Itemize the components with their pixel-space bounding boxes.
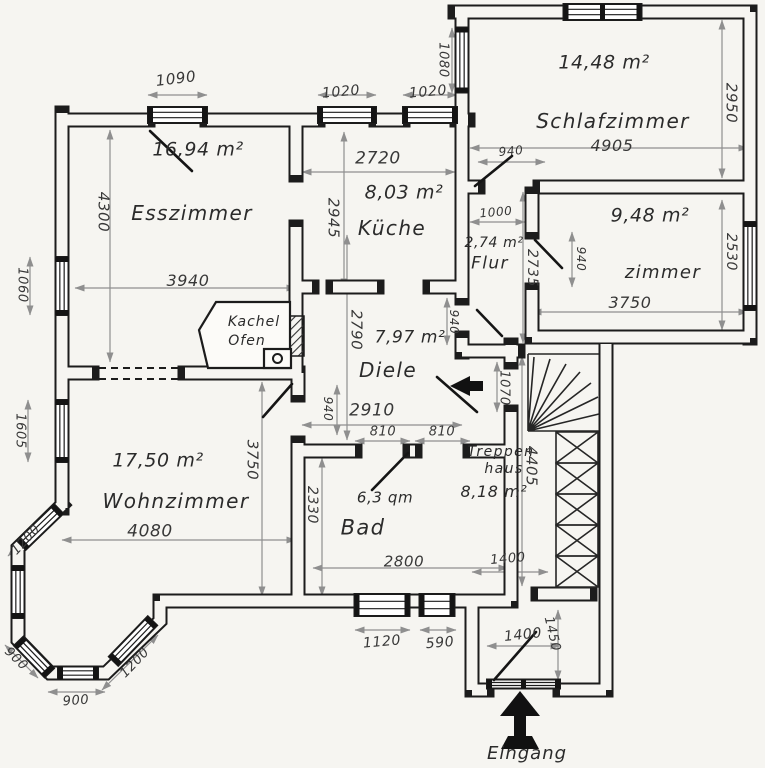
dim-label: 590 bbox=[425, 635, 455, 651]
room-name-label: Diele bbox=[359, 360, 417, 380]
dim-label: 940 bbox=[448, 310, 460, 335]
dim-label: 1080 bbox=[437, 42, 450, 77]
dim-label: 4080 bbox=[127, 524, 173, 541]
room-area-label: 2,74 m² bbox=[464, 236, 523, 250]
room-name-label: zimmer bbox=[625, 264, 701, 282]
room-name-label: Küche bbox=[358, 218, 426, 238]
dim-label: 2950 bbox=[724, 83, 739, 124]
dim-label: 2530 bbox=[724, 233, 738, 271]
dim-label: 810 bbox=[429, 426, 456, 439]
dim-label: 1000 bbox=[479, 205, 513, 220]
dim-label: 940 bbox=[322, 397, 334, 422]
floor-plan: 16,94 m²Esszimmer39404300109010201020108… bbox=[0, 0, 765, 768]
feature-label: Eingang bbox=[487, 745, 567, 763]
dim-label: 1060 bbox=[16, 267, 29, 302]
dim-label: 3750 bbox=[608, 295, 651, 311]
dim-label: 2945 bbox=[326, 198, 341, 239]
dim-label: 1020 bbox=[321, 83, 360, 100]
room-area-label: 6,3 qm bbox=[357, 491, 413, 506]
room-area-label: 9,48 m² bbox=[611, 207, 690, 226]
room-area-label: 8,03 m² bbox=[365, 184, 444, 203]
dim-label: 1070 bbox=[498, 370, 511, 405]
dim-label: 3940 bbox=[166, 273, 209, 289]
dim-label: 1200 bbox=[9, 523, 43, 558]
dim-label: 1400 bbox=[503, 626, 542, 644]
dim-label: 1120 bbox=[362, 633, 401, 650]
dim-label: 2800 bbox=[384, 555, 425, 570]
dim-label: 1020 bbox=[408, 83, 447, 100]
room-area-label: 17,50 m² bbox=[112, 452, 203, 471]
dim-label: 4300 bbox=[96, 192, 111, 233]
dim-label: 1090 bbox=[155, 69, 197, 89]
room-name-label: Flur bbox=[471, 256, 509, 273]
room-area-label: 16,94 m² bbox=[152, 141, 243, 160]
room-name-label: haus bbox=[484, 462, 523, 476]
room-name-label: Esszimmer bbox=[131, 203, 253, 223]
dim-label: 940 bbox=[575, 247, 587, 272]
dim-label: 3750 bbox=[245, 440, 260, 481]
dim-label: 2735 bbox=[525, 249, 539, 287]
room-area-label: 8,18 m² bbox=[461, 484, 528, 500]
dim-label: 4405 bbox=[524, 446, 539, 487]
room-area-label: 7,97 m² bbox=[375, 330, 446, 347]
feature-label: Ofen bbox=[228, 334, 265, 348]
room-area-label: 14,48 m² bbox=[558, 54, 649, 73]
room-name-label: Wohnzimmer bbox=[103, 491, 250, 511]
dim-label: 4905 bbox=[590, 138, 633, 154]
dim-label: 1450 bbox=[542, 615, 563, 652]
room-name-label: Bad bbox=[341, 518, 386, 539]
room-name-label: Schlafzimmer bbox=[536, 111, 690, 131]
dim-label: 2330 bbox=[305, 486, 319, 524]
dim-label: 1200 bbox=[118, 646, 152, 681]
dim-label: 2910 bbox=[349, 403, 395, 420]
dim-label: 1400 bbox=[490, 551, 526, 567]
feature-label: Kachel bbox=[228, 315, 280, 329]
dim-label: 900 bbox=[2, 645, 30, 673]
dim-label: 1605 bbox=[14, 413, 27, 448]
dim-label: 900 bbox=[62, 694, 89, 709]
dim-label: 2790 bbox=[349, 310, 364, 351]
labels-layer: 16,94 m²Esszimmer39404300109010201020108… bbox=[0, 0, 765, 768]
dim-label: 2720 bbox=[355, 151, 401, 168]
dim-label: 940 bbox=[498, 144, 524, 158]
dim-label: 810 bbox=[370, 426, 397, 439]
